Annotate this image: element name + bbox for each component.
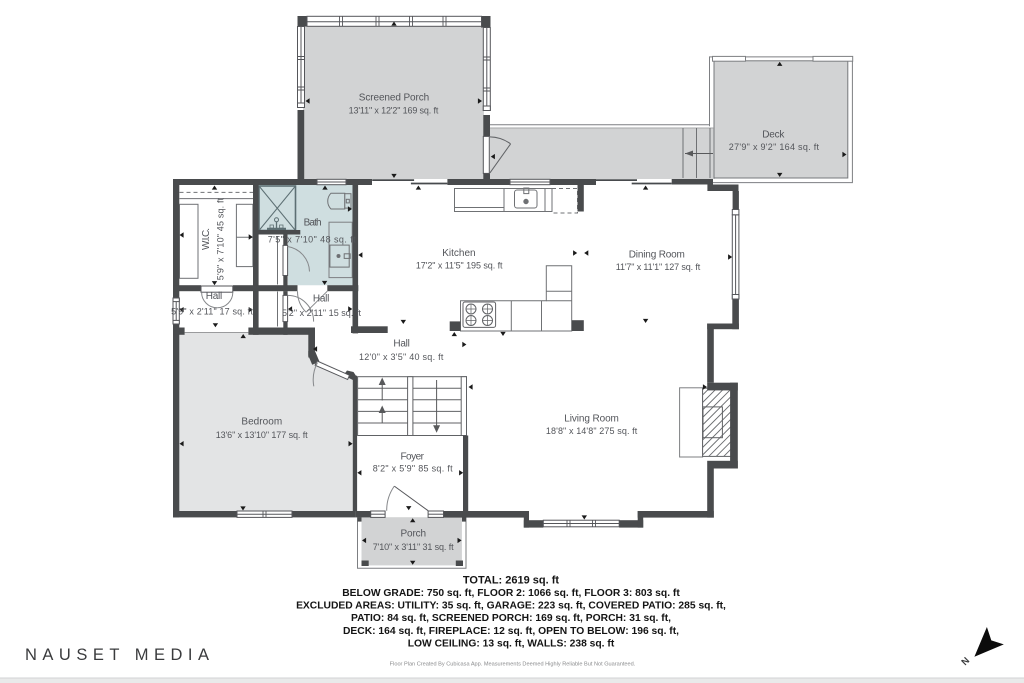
svg-text:18'8" x 14'8" 275 sq. ft: 18'8" x 14'8" 275 sq. ft <box>546 426 638 436</box>
svg-text:Floor Plan Created By Cubicasa: Floor Plan Created By Cubicasa App. Meas… <box>390 662 636 668</box>
svg-text:27'9" x 9'2" 164 sq. ft: 27'9" x 9'2" 164 sq. ft <box>729 142 820 152</box>
svg-text:Foyer: Foyer <box>400 452 424 463</box>
svg-text:W.I.C.: W.I.C. <box>201 228 212 250</box>
svg-text:TOTAL: 2619 sq. ft: TOTAL: 2619 sq. ft <box>463 575 560 587</box>
svg-text:DECK: 164 sq. ft, FIREPLACE: 1: DECK: 164 sq. ft, FIREPLACE: 12 sq. ft, … <box>343 626 679 637</box>
svg-text:Screened Porch: Screened Porch <box>359 92 429 103</box>
svg-text:11'7" x 11'1" 127 sq. ft: 11'7" x 11'1" 127 sq. ft <box>616 262 701 272</box>
svg-text:LOW CEILING: 13 sq. ft, WALLS:: LOW CEILING: 13 sq. ft, WALLS: 238 sq. f… <box>408 638 615 649</box>
svg-text:PATIO: 84 sq. ft, SCREENED POR: PATIO: 84 sq. ft, SCREENED PORCH: 169 sq… <box>351 613 671 624</box>
svg-text:5'2" x 2'11" 15 sq. ft: 5'2" x 2'11" 15 sq. ft <box>282 308 361 318</box>
svg-text:5'9" x 7'10" 45 sq. ft: 5'9" x 7'10" 45 sq. ft <box>215 197 225 280</box>
svg-text:Bath: Bath <box>304 218 322 229</box>
svg-text:13'11" x 12'2" 169 sq. ft: 13'11" x 12'2" 169 sq. ft <box>349 105 439 115</box>
svg-text:Bedroom: Bedroom <box>241 417 282 428</box>
svg-text:Porch: Porch <box>401 528 427 539</box>
svg-text:8'2" x 5'9" 85 sq. ft: 8'2" x 5'9" 85 sq. ft <box>373 464 453 474</box>
svg-text:Dining Room: Dining Room <box>629 250 685 261</box>
svg-text:13'6" x 13'10" 177 sq. ft: 13'6" x 13'10" 177 sq. ft <box>216 430 308 440</box>
svg-text:5'9" x 2'11" 17 sq. ft: 5'9" x 2'11" 17 sq. ft <box>171 307 253 317</box>
svg-text:7'10" x 3'11" 31 sq. ft: 7'10" x 3'11" 31 sq. ft <box>373 542 454 552</box>
svg-text:12'0" x 3'5" 40 sq. ft: 12'0" x 3'5" 40 sq. ft <box>359 352 444 362</box>
svg-text:Deck: Deck <box>762 129 785 140</box>
svg-text:EXCLUDED AREAS: UTILITY: 35 sq: EXCLUDED AREAS: UTILITY: 35 sq. ft, GARA… <box>296 601 726 612</box>
svg-text:7'5" x 7'10" 48 sq. ft: 7'5" x 7'10" 48 sq. ft <box>268 234 356 244</box>
svg-text:Hall: Hall <box>393 339 409 350</box>
svg-text:BELOW GRADE: 750 sq. ft, FLOOR: BELOW GRADE: 750 sq. ft, FLOOR 2: 1066 s… <box>342 588 680 599</box>
svg-text:17'2" x 11'5" 195 sq. ft: 17'2" x 11'5" 195 sq. ft <box>416 261 503 271</box>
svg-text:NAUSET MEDIA: NAUSET MEDIA <box>25 646 214 664</box>
svg-text:Kitchen: Kitchen <box>442 248 475 259</box>
svg-text:Living Room: Living Room <box>564 414 619 425</box>
svg-text:Hall: Hall <box>206 291 222 302</box>
svg-text:Hall: Hall <box>313 294 329 305</box>
